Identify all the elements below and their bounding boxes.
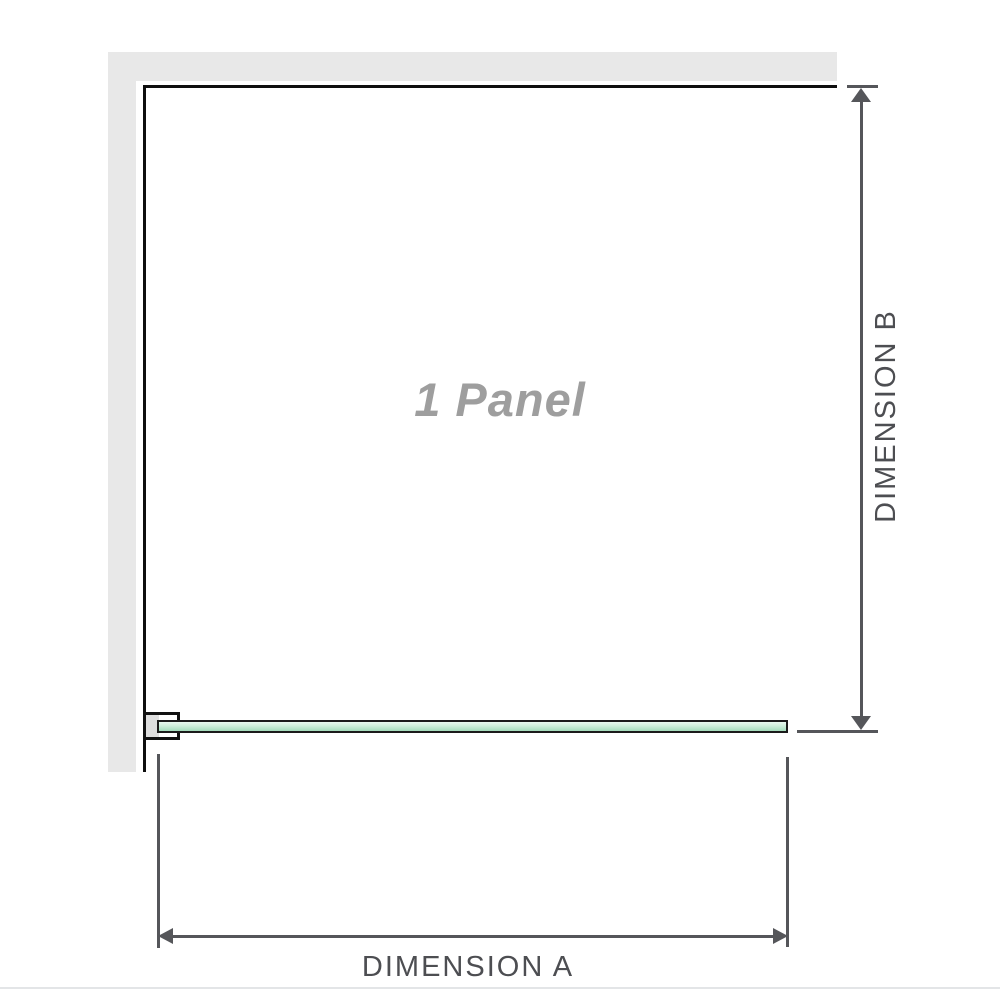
arrow-up-icon xyxy=(851,88,871,102)
bottom-divider xyxy=(0,987,1000,989)
arrow-left-icon xyxy=(158,928,173,944)
wall-left xyxy=(108,52,136,772)
wall-top xyxy=(108,52,837,81)
arrow-down-icon xyxy=(851,716,871,730)
dimension-a-label: DIMENSION A xyxy=(318,952,618,982)
panel-area: 1 Panel xyxy=(146,88,837,720)
dimension-b-line xyxy=(860,95,863,720)
glass-panel-bar xyxy=(157,720,788,733)
dimension-b-label: DIMENSION B xyxy=(871,296,901,536)
dimension-a-line xyxy=(168,935,778,938)
shower-panel-dimension-diagram: 1 Panel DIMENSION B DIMENSION A xyxy=(0,0,1000,1000)
dimension-a-left-extension xyxy=(157,754,160,948)
dimension-a-right-extension xyxy=(786,757,789,947)
panel-count-label: 1 Panel xyxy=(300,372,700,427)
arrow-right-icon xyxy=(773,928,788,944)
dimension-b-bottom-tick xyxy=(797,730,878,733)
